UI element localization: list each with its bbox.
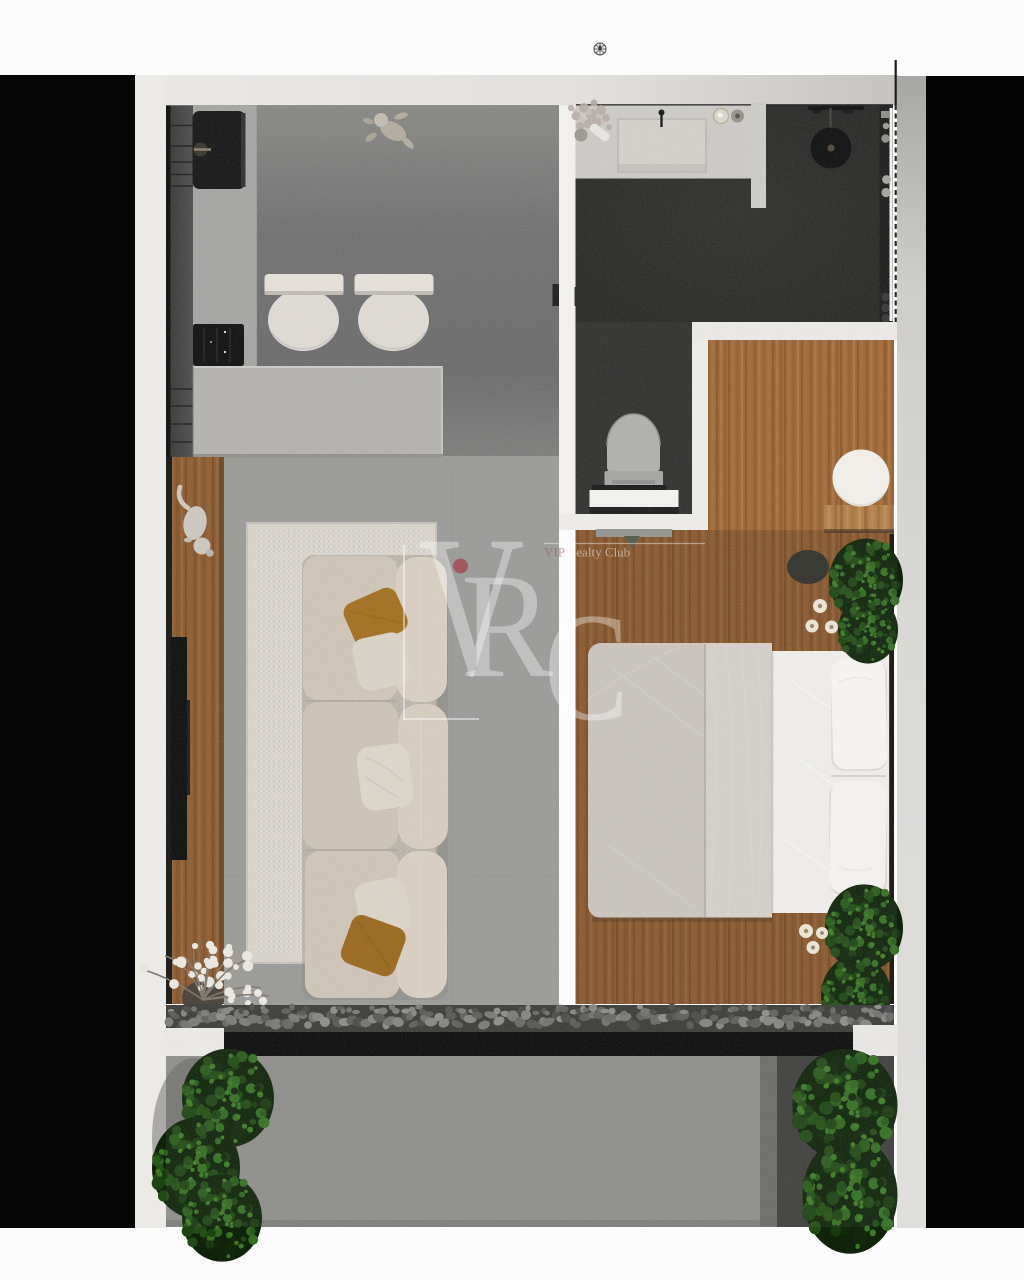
svg-text:R: R: [461, 544, 553, 709]
svg-text:VIP Realty Club: VIP Realty Club: [544, 545, 630, 560]
svg-text:C: C: [544, 581, 629, 753]
